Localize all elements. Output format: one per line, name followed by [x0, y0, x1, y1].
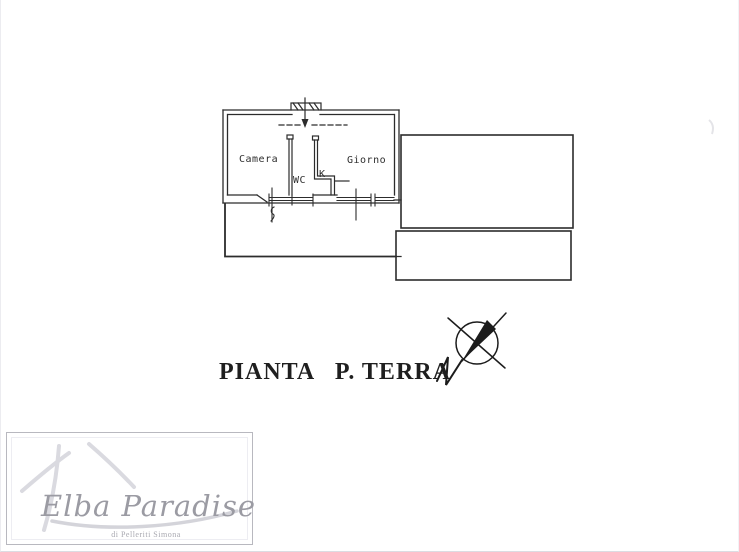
terrace-edge — [225, 204, 396, 257]
scan-artifact — [709, 120, 713, 134]
annex-large — [401, 135, 573, 228]
room-label-wc: WC — [293, 175, 306, 186]
entrance-door — [279, 98, 347, 128]
wc-right-wall — [315, 140, 335, 195]
window-c — [375, 194, 394, 206]
terrace-outline — [225, 204, 396, 257]
entry-arrow-head — [302, 119, 309, 128]
door-swing-tick — [257, 195, 267, 202]
watermark-subtitle: di Pelleriti Simona — [41, 530, 251, 539]
watermark-brand: Elba Paradise — [41, 489, 251, 523]
wc-left-wall — [289, 139, 292, 195]
plan-title: PIANTA P. TERRA — [219, 359, 451, 386]
survey-ticks — [272, 188, 356, 222]
scanned-floor-plan-page: Camera Giorno WC K PIANTA P. TERRA Elba … — [0, 0, 739, 552]
threshold-hatches — [293, 103, 319, 110]
room-label-camera: Camera — [239, 154, 278, 165]
roof-right-stroke — [89, 444, 134, 487]
window-b — [337, 194, 371, 206]
agency-watermark: Elba Paradise di Pelleriti Simona — [6, 432, 253, 545]
room-label-kitchen: K — [319, 169, 326, 180]
room-label-giorno: Giorno — [347, 155, 386, 166]
roof-left-stroke — [22, 453, 69, 491]
window-a — [269, 194, 313, 206]
interior-walls — [287, 135, 349, 195]
annex-lower — [396, 231, 571, 280]
wall-top — [223, 110, 399, 115]
annex-rectangles — [391, 135, 573, 280]
